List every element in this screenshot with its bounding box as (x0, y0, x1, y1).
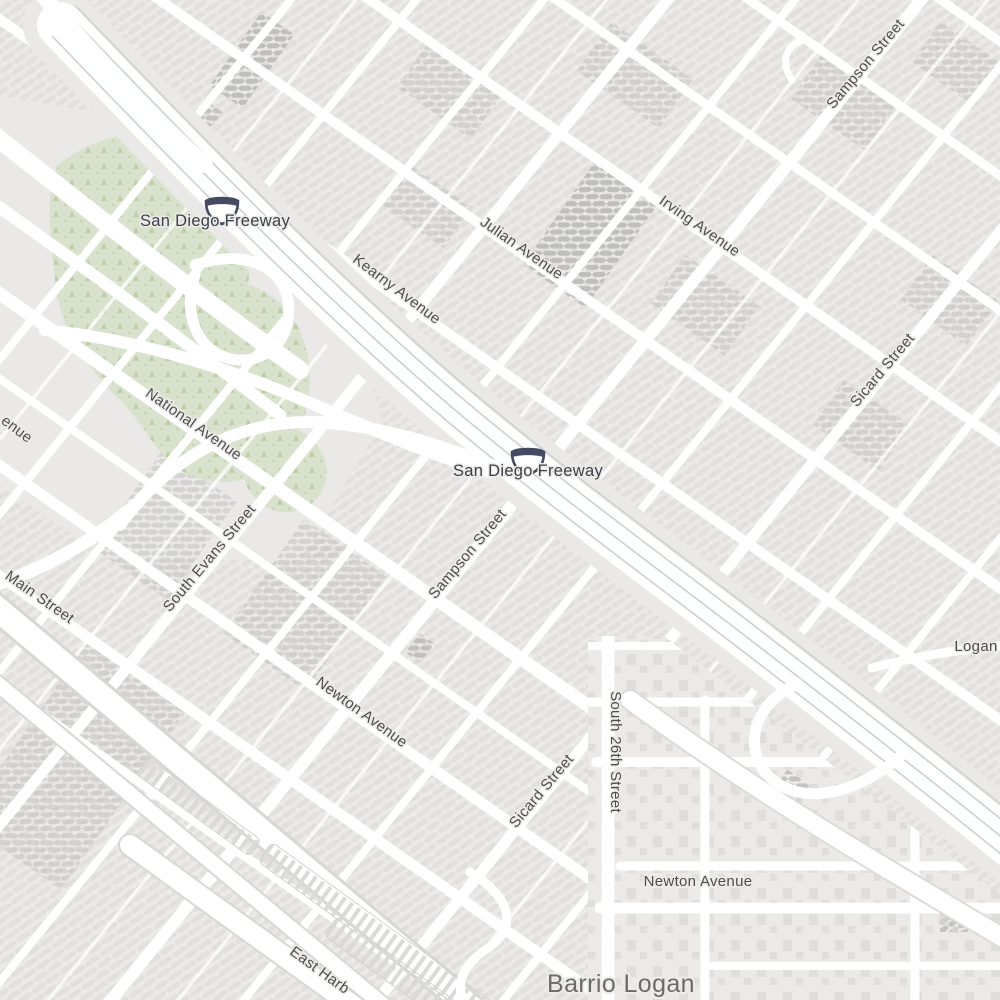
neighborhood-label-barrio-logan: Barrio Logan (547, 970, 695, 998)
freeway-label-nw: San Diego Freeway (140, 212, 290, 230)
street-label-newton-se: Newton Avenue (644, 873, 753, 890)
street-label-south-26th: South 26th Street (607, 691, 624, 813)
freeway-label-center: San Diego Freeway (453, 462, 603, 480)
map-canvas[interactable]: San Diego Freeway San Diego Freeway Samp… (0, 0, 1000, 1000)
street-label-logan-partial: Logan (954, 638, 997, 655)
map-image: San Diego Freeway San Diego Freeway Samp… (0, 0, 1000, 1000)
